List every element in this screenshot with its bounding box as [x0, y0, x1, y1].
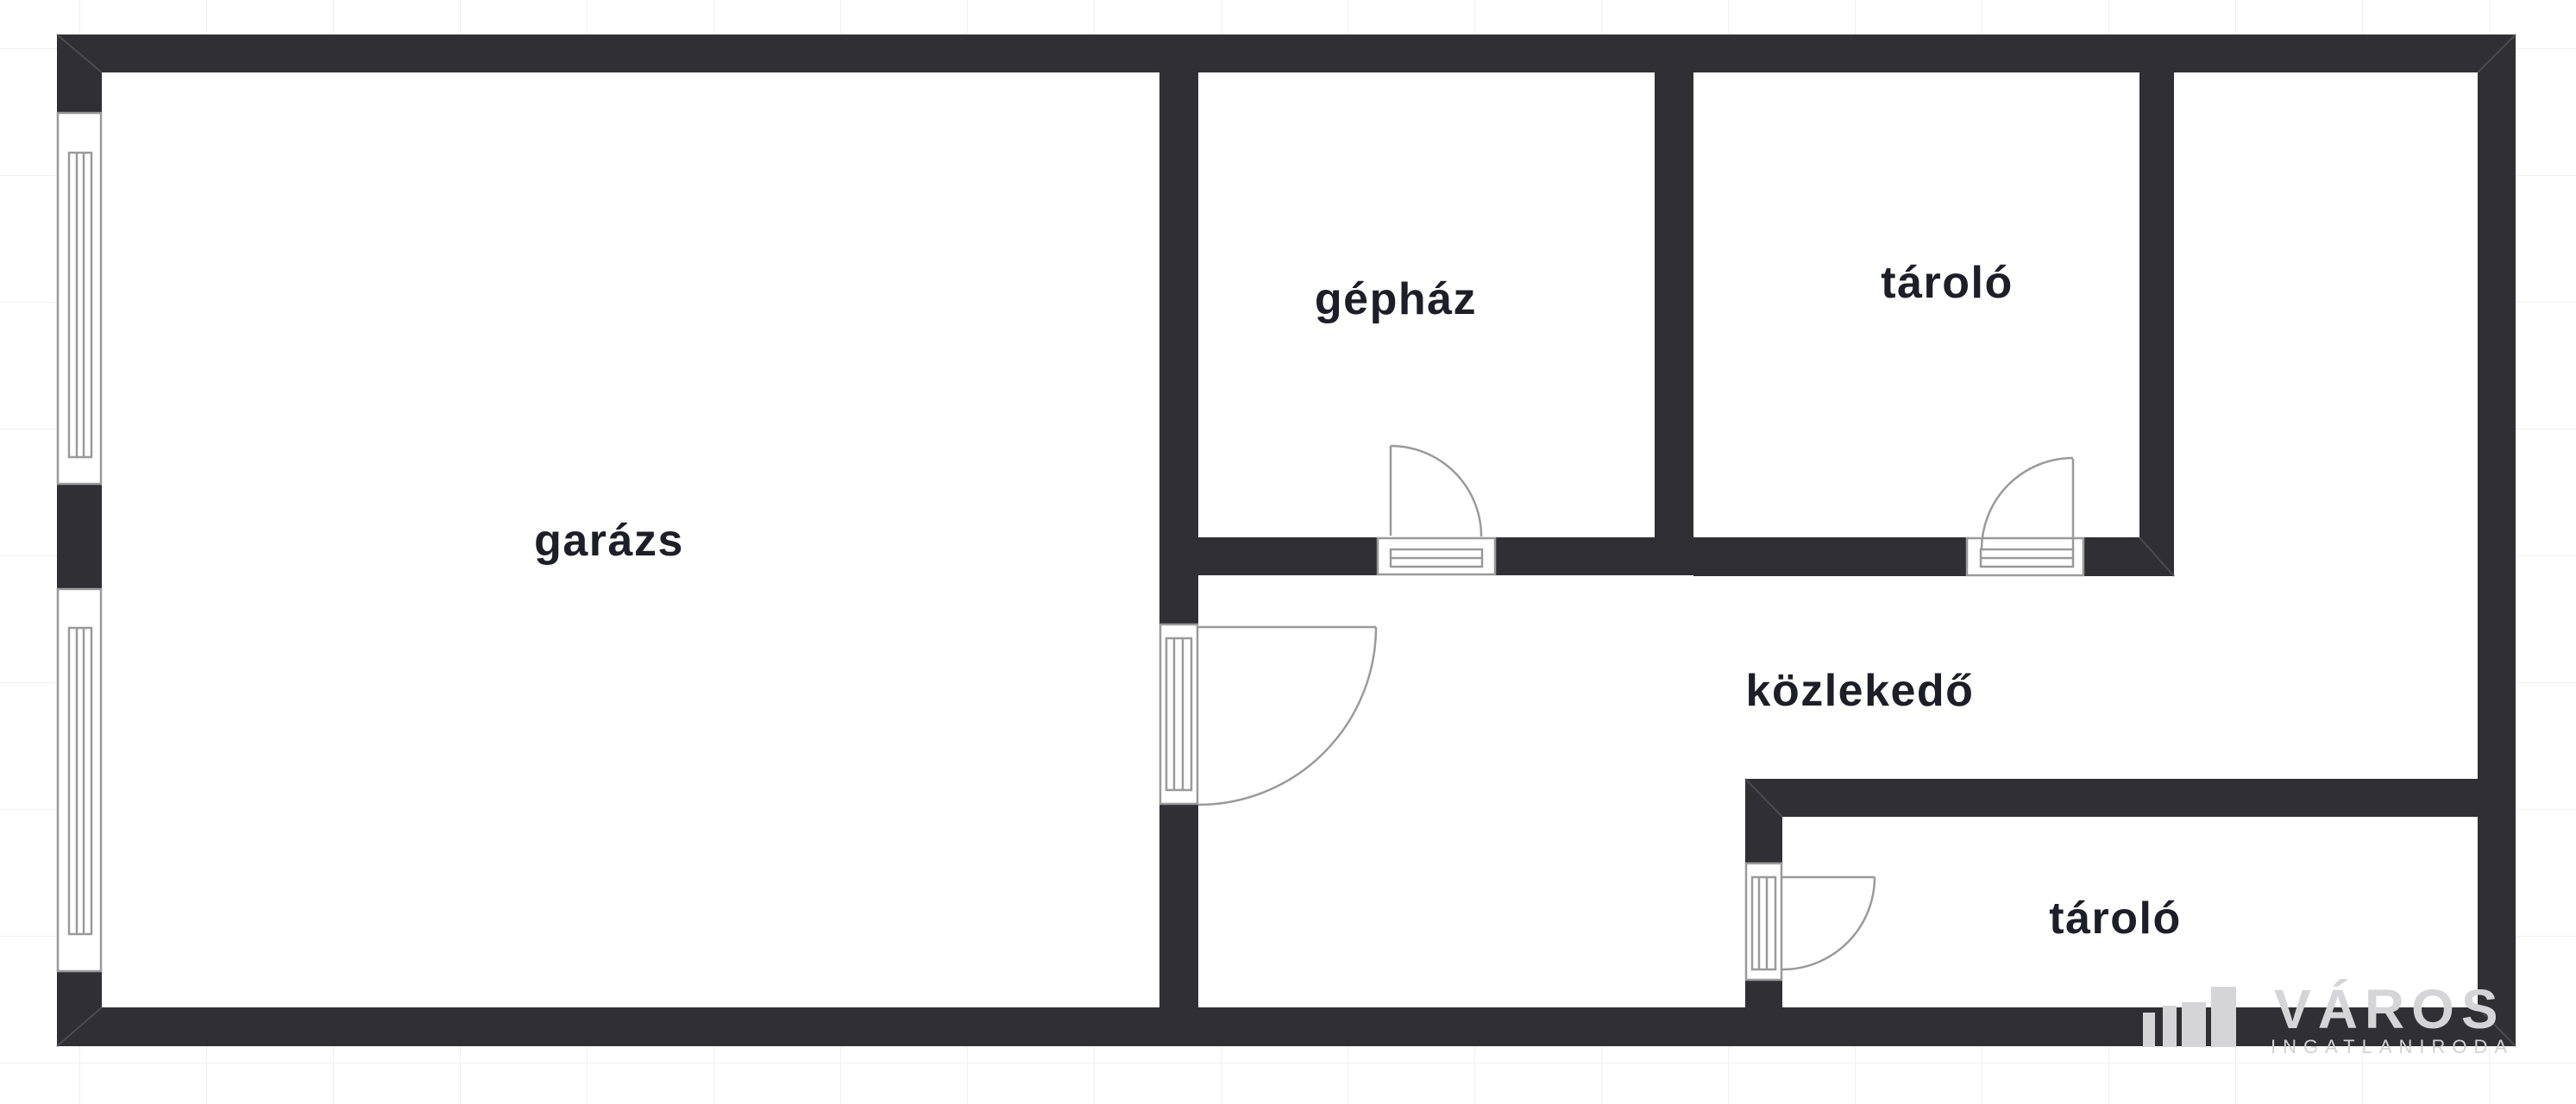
wall-outer-top [57, 34, 2516, 72]
window-symbol-lower [58, 589, 101, 971]
room-label-gephaz: gépház [1315, 274, 1477, 324]
room-label-kozlekedo: közlekedő [1746, 666, 1975, 716]
room-label-garazs: garázs [534, 516, 684, 566]
watermark-brand: VÁROS [2274, 978, 2505, 1040]
room-label-tarolo-also: tároló [2049, 894, 2181, 944]
wall-gephaz-tarolo-divider [1655, 72, 1693, 575]
window-symbol-upper [58, 113, 101, 484]
floorplan-canvas: garázs gépház tároló közlekedő tároló VÁ… [0, 0, 2576, 1104]
wall-garage-divider [1159, 72, 1198, 1007]
wall-tarolo-right [2139, 72, 2174, 576]
wall-storage-top [1745, 779, 2478, 817]
wall-outer-right [2478, 34, 2516, 1046]
watermark-subtitle: INGATLANIRODA [2271, 1036, 2514, 1057]
room-label-tarolo-felso: tároló [1881, 258, 2013, 308]
